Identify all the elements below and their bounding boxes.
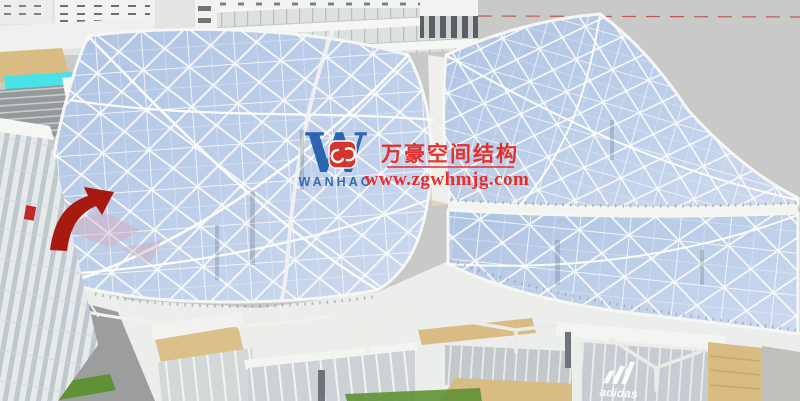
render-canvas: adidas <box>0 0 800 401</box>
watermark-company-name: 万豪空间结构 <box>380 142 519 166</box>
watermark-website: www.zgwhmjg.com <box>365 169 530 190</box>
wood-pillar <box>708 342 762 401</box>
wanhao-logo: W WANHAO <box>299 121 374 189</box>
column <box>318 370 325 401</box>
scene-svg: adidas <box>0 0 800 401</box>
adidas-sign-text: adidas <box>599 385 638 401</box>
right-end-tower <box>420 0 478 38</box>
canopy-main-panel <box>38 29 434 306</box>
column <box>565 332 571 368</box>
wanhao-logo-text: WANHAO <box>299 175 374 189</box>
wanhao-emblem-icon <box>329 141 356 168</box>
